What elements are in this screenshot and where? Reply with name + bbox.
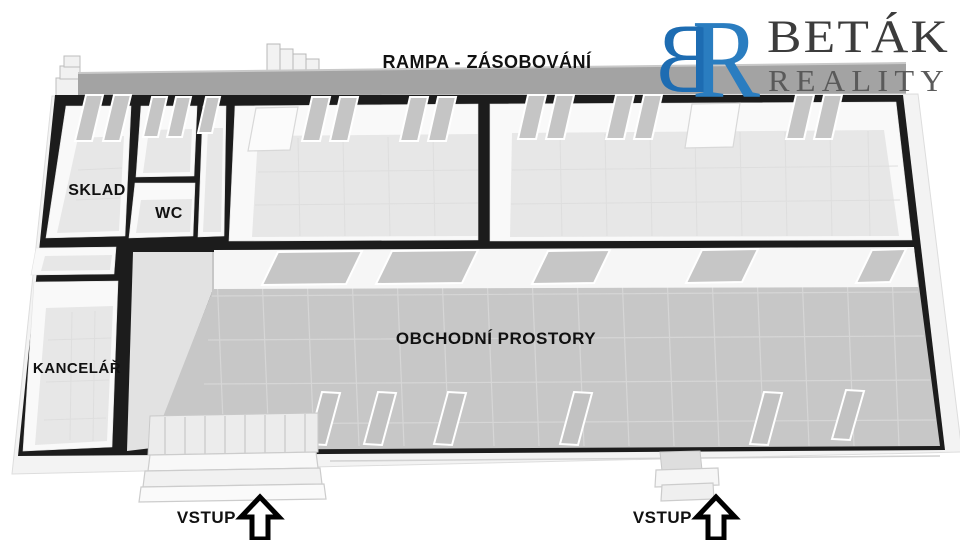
up-arrow-icon xyxy=(241,497,279,539)
hallway-floor xyxy=(41,255,112,271)
entrance-annotations: VSTUP VSTUP xyxy=(177,497,735,539)
wc-label: WC xyxy=(155,205,183,222)
logo-division: REALITY xyxy=(768,63,950,98)
entrance-right-step xyxy=(661,483,714,501)
ramp-label: RAMPA - ZÁSOBOVÁNÍ xyxy=(383,51,592,72)
logo-monogram-r: R xyxy=(692,0,760,122)
ramp-stairs-left xyxy=(64,56,80,67)
floorplan-page: RAMPA - ZÁSOBOVÁNÍ SKLAD WC KANCELÁŘ OBC… xyxy=(0,0,960,540)
entrance-left-vestibule xyxy=(148,413,318,455)
office-label: KANCELÁŘ xyxy=(33,359,121,377)
entrance-right-label: VSTUP xyxy=(633,508,692,527)
entrance-left xyxy=(139,413,326,502)
back-room-a xyxy=(229,97,478,241)
up-arrow-icon xyxy=(697,497,735,539)
ramp-stairs-top xyxy=(280,49,293,71)
sales-label: OBCHODNÍ PROSTORY xyxy=(396,329,596,348)
back-room-a-door xyxy=(248,107,298,151)
ramp-stairs-top xyxy=(293,54,306,71)
entrance-right-door xyxy=(660,451,702,471)
logo-company-name: BETÁK xyxy=(767,11,950,63)
entrance-left-step xyxy=(139,484,326,502)
storage-label: SKLAD xyxy=(68,182,126,199)
floorplan-image: RAMPA - ZÁSOBOVÁNÍ SKLAD WC KANCELÁŘ OBC… xyxy=(0,0,960,540)
ramp-stairs-top xyxy=(267,44,280,71)
ramp-stairs-left xyxy=(60,66,80,79)
entrance-left-label: VSTUP xyxy=(177,508,236,527)
